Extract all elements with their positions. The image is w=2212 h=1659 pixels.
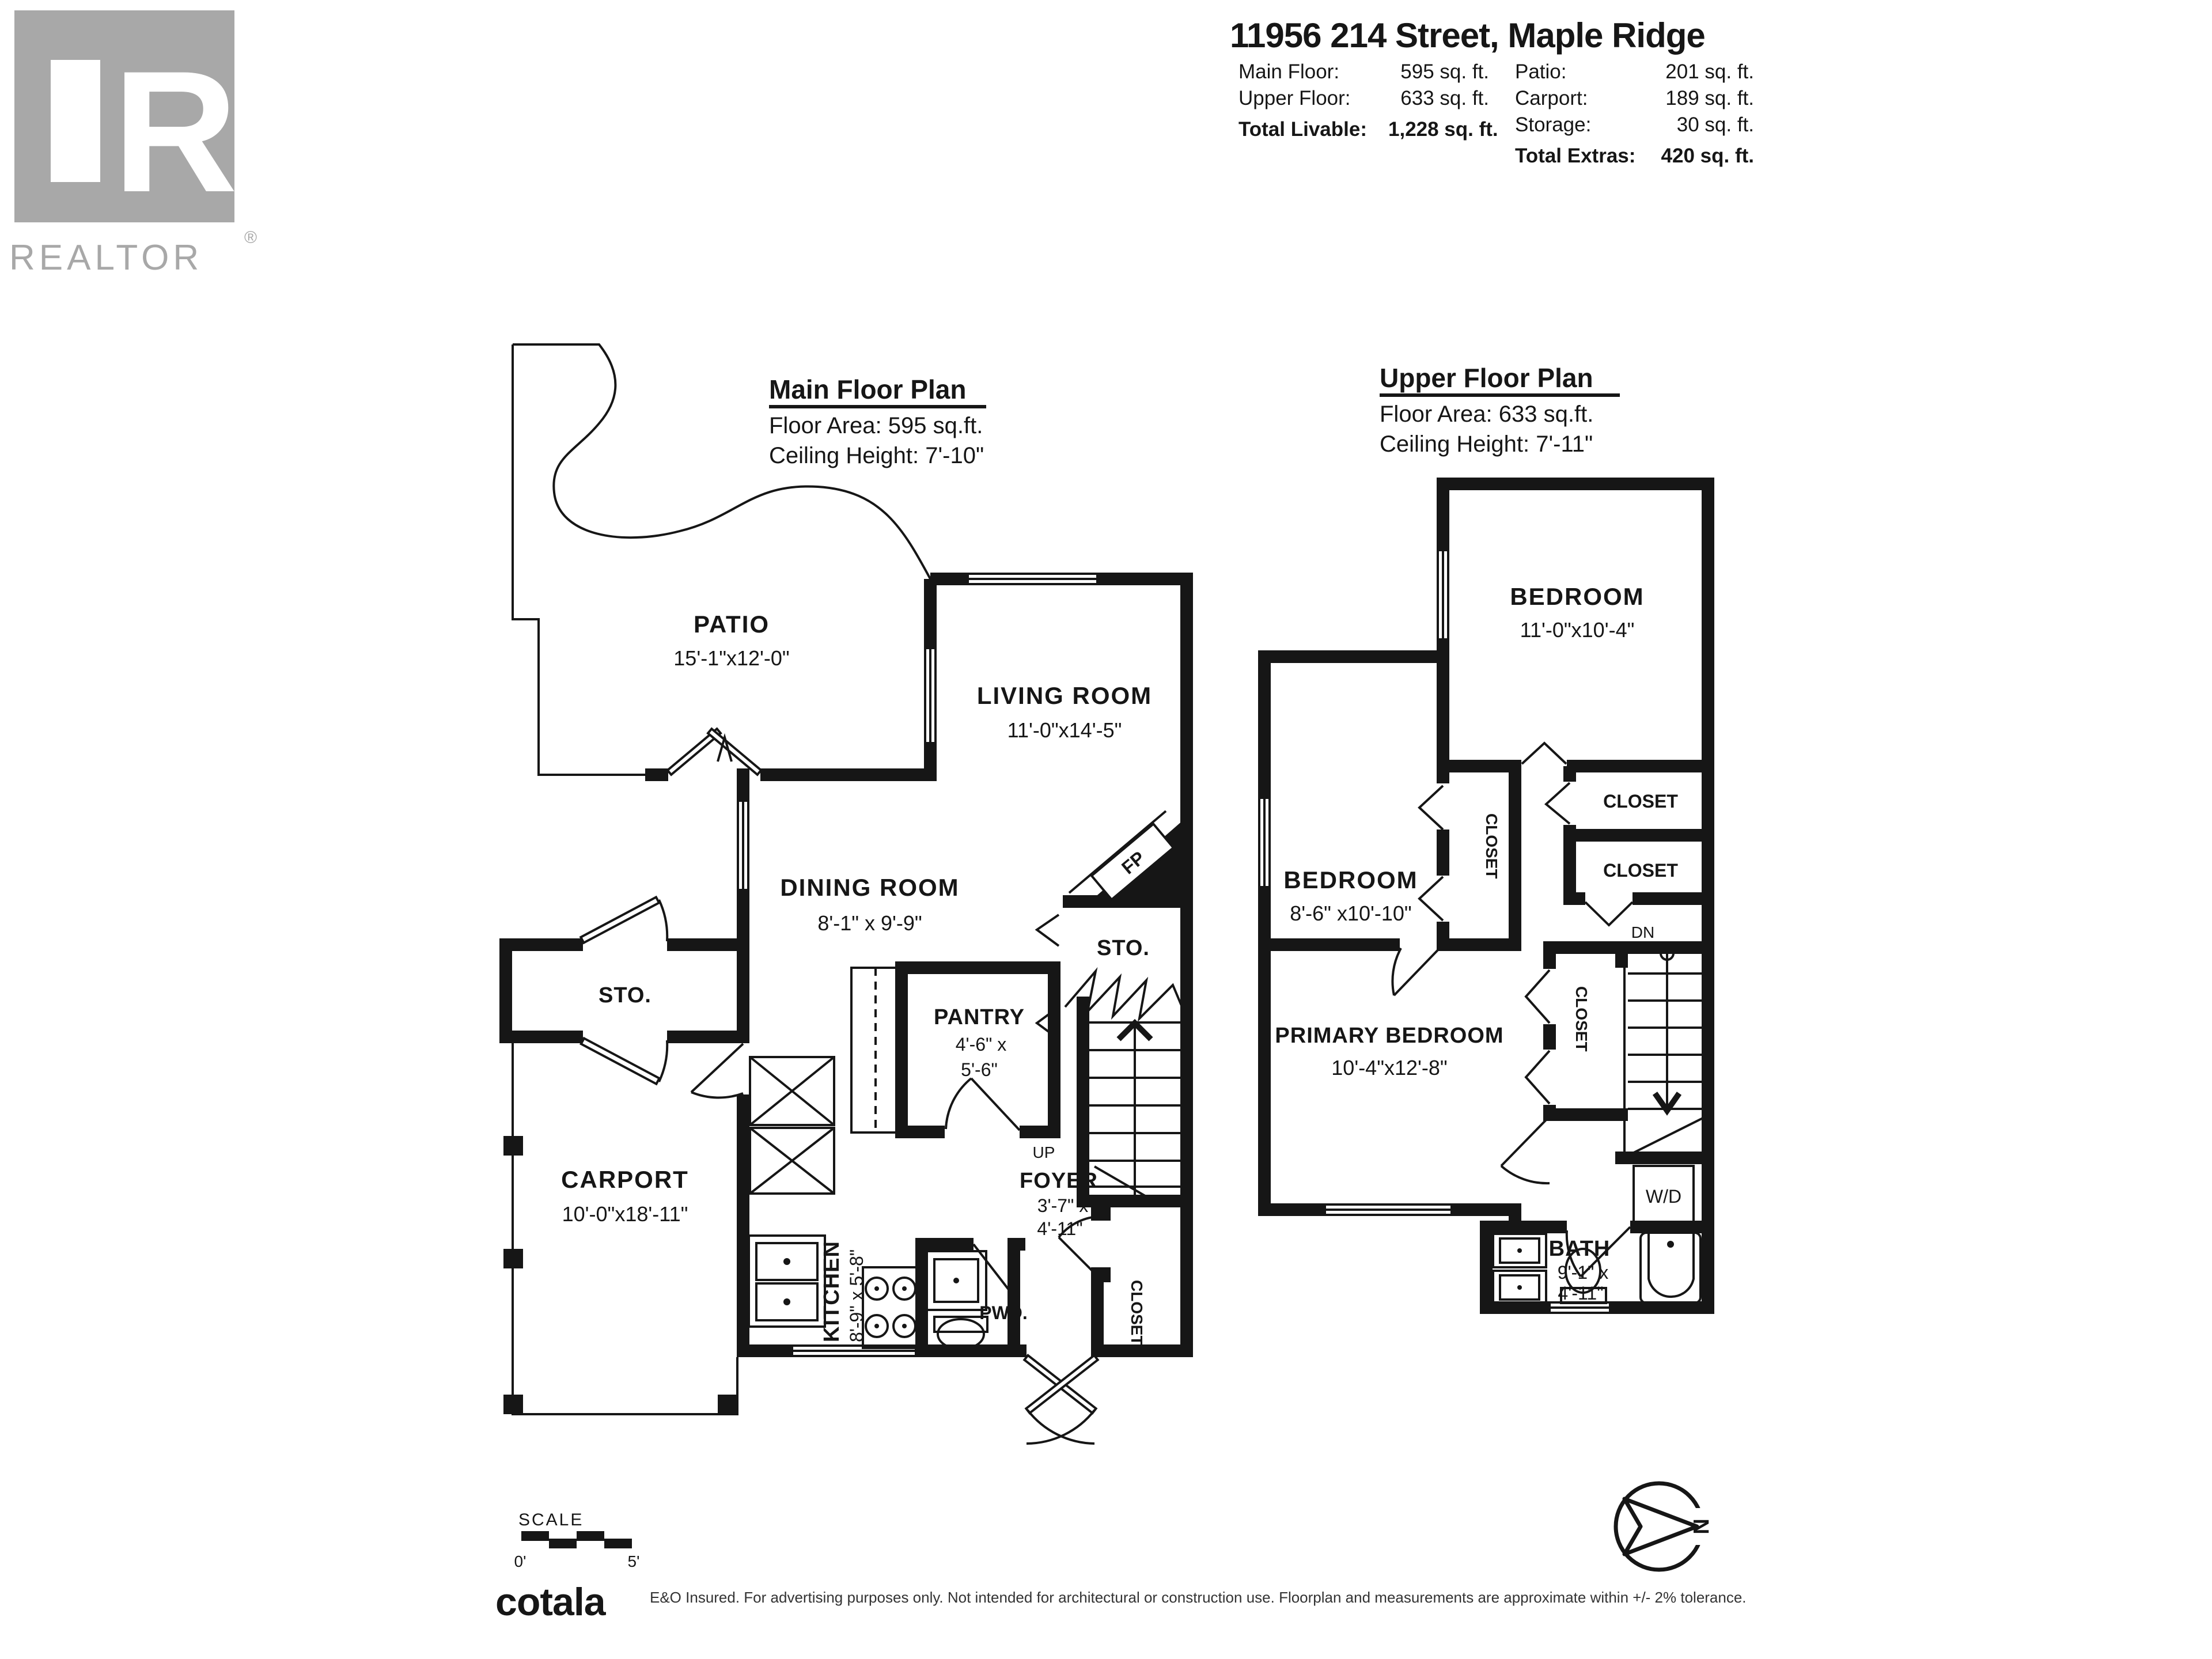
- total-extras-value: 420 sq. ft.: [1661, 145, 1754, 167]
- room-label-foyer: FOYER: [1020, 1169, 1098, 1193]
- stat-label: Carport:: [1515, 87, 1588, 109]
- room-dims-kitchen: 8'-9" x 5'-8": [846, 1249, 867, 1342]
- main-floor-plan: Main Floor Plan Floor Area: 595 sq.ft. C…: [499, 344, 1193, 1444]
- room-label-closet-mid: CLOSET: [1483, 813, 1501, 879]
- stat-label: Upper Floor:: [1238, 87, 1351, 109]
- post: [503, 1249, 523, 1268]
- window: [1325, 1205, 1452, 1215]
- door-leaf: [1501, 1116, 1550, 1166]
- floorplan-sheet: R REALTOR ® 11956 214 Street, Maple Ridg…: [0, 0, 2212, 1659]
- stat-value: 30 sq. ft.: [1677, 113, 1754, 136]
- range-stove-icon: [863, 1267, 917, 1348]
- room-dims-primary: 10'-4"x12'-8": [1331, 1056, 1447, 1080]
- scale-bar-icon: [521, 1531, 632, 1548]
- stat-value: 633 sq. ft.: [1400, 87, 1489, 109]
- window: [1259, 798, 1270, 887]
- room-label-closet-primary: CLOSET: [1573, 986, 1590, 1052]
- footer: SCALE 0' 5' cotala E&O Insured. For adve…: [495, 1483, 1747, 1624]
- room-label-living: LIVING ROOM: [977, 682, 1152, 709]
- dn-label: DN: [1631, 923, 1654, 941]
- scale-five: 5': [628, 1552, 640, 1570]
- room-label-storage-left: STO.: [599, 983, 652, 1007]
- north-arrow-icon: N: [1616, 1483, 1724, 1570]
- room-label-storage-right: STO.: [1097, 936, 1150, 960]
- stat-value: 189 sq. ft.: [1665, 87, 1754, 109]
- cotala-logo: cotala: [495, 1580, 607, 1624]
- door-jamb: [1091, 1267, 1111, 1282]
- total-extras-label: Total Extras:: [1515, 145, 1635, 167]
- door-swing: [946, 1078, 971, 1129]
- room-dims-pantry-1: 4'-6" x: [956, 1034, 1007, 1055]
- scale-zero: 0': [514, 1552, 527, 1570]
- room-label-kitchen: KITCHEN: [820, 1241, 844, 1342]
- room-label-patio: PATIO: [694, 611, 770, 638]
- room-label-pwd: PWD.: [979, 1302, 1028, 1323]
- french-door: [668, 729, 761, 775]
- front-door: [1024, 1355, 1097, 1444]
- cabinet: [851, 968, 901, 1132]
- page-title: 11956 214 Street, Maple Ridge: [1230, 16, 1705, 55]
- stat-label: Main Floor:: [1238, 60, 1339, 83]
- room-dims-bedroom1: 11'-0"x10'-4": [1520, 618, 1635, 642]
- door-leaf: [971, 1078, 1020, 1130]
- stat-label: Patio:: [1515, 60, 1567, 83]
- room-dims-foyer-1: 3'-7" x: [1037, 1195, 1089, 1216]
- upper-floor-area: Floor Area: 633 sq.ft.: [1380, 402, 1593, 427]
- up-label: UP: [1033, 1143, 1055, 1161]
- post: [718, 1395, 737, 1414]
- total-livable-label: Total Livable:: [1238, 118, 1367, 141]
- realtor-registered-mark: ®: [244, 228, 257, 247]
- upper-floor-plan: Upper Floor Plan Floor Area: 633 sq.ft. …: [1258, 363, 1714, 1314]
- room-label-dining: DINING ROOM: [780, 874, 959, 901]
- window: [925, 648, 935, 743]
- room-label-bedroom2: BEDROOM: [1283, 866, 1418, 893]
- fireplace-icon: FP: [1069, 811, 1184, 900]
- room-dims-bedroom2: 8'-6" x10'-10": [1290, 902, 1411, 925]
- realtor-logo-r: R: [113, 35, 238, 228]
- room-dims-foyer-2: 4'-11": [1037, 1218, 1082, 1239]
- door-leaf: [691, 1044, 743, 1092]
- main-floor-area: Floor Area: 595 sq.ft.: [769, 413, 983, 438]
- header: 11956 214 Street, Maple Ridge Main Floor…: [1230, 16, 1754, 167]
- scale-label: SCALE: [518, 1510, 584, 1529]
- door-leaf: [1394, 945, 1443, 995]
- main-floor-title: Main Floor Plan: [769, 374, 966, 404]
- stairs-down: [1624, 945, 1708, 1157]
- closet-doors: [1419, 743, 1633, 1104]
- carport-outline: [503, 1043, 737, 1414]
- stat-label: Storage:: [1515, 113, 1591, 136]
- room-dims-pantry-2: 5'-6": [961, 1059, 998, 1080]
- room-dims-patio: 15'-1"x12'-0": [673, 646, 789, 670]
- door-swing: [1501, 1166, 1550, 1183]
- washer-dryer-icon: W/D: [1634, 1166, 1694, 1224]
- stat-value: 595 sq. ft.: [1400, 60, 1489, 83]
- upper-floor-title: Upper Floor Plan: [1380, 363, 1593, 393]
- post: [503, 1136, 523, 1156]
- main-floor-ceiling: Ceiling Height: 7'-10": [769, 443, 984, 468]
- room-dims-living: 11'-0"x14'-5": [1007, 718, 1122, 742]
- powder-room-fixtures: [926, 1244, 1009, 1349]
- room-label-primary: PRIMARY BEDROOM: [1275, 1024, 1503, 1048]
- room-label-closet-r1: CLOSET: [1603, 791, 1678, 812]
- room-label-carport: CARPORT: [561, 1166, 689, 1193]
- door-jamb: [1091, 1206, 1111, 1221]
- wd-label: W/D: [1646, 1186, 1681, 1207]
- room-dims-bath-1: 9'-1" x: [1558, 1262, 1609, 1283]
- room-label-pantry: PANTRY: [934, 1005, 1025, 1029]
- door-leaf: [1059, 1237, 1097, 1276]
- window: [1438, 550, 1448, 639]
- realtor-logo-icon: R REALTOR ®: [9, 10, 257, 278]
- post: [503, 1395, 523, 1414]
- stat-value: 201 sq. ft.: [1665, 60, 1754, 83]
- room-dims-dining: 8'-1" x 9'-9": [817, 911, 922, 935]
- room-label-bedroom1: BEDROOM: [1510, 583, 1644, 610]
- room-label-closet-r2: CLOSET: [1603, 860, 1678, 881]
- disclaimer-text: E&O Insured. For advertising purposes on…: [650, 1589, 1747, 1606]
- window: [738, 801, 748, 890]
- upper-floor-ceiling: Ceiling Height: 7'-11": [1380, 431, 1593, 457]
- room-dims-carport: 10'-0"x18'-11": [562, 1202, 688, 1226]
- patio-outline: [513, 344, 930, 775]
- realtor-logo-stem: [51, 60, 100, 182]
- realtor-logo-word: REALTOR: [9, 238, 203, 278]
- window: [968, 574, 1097, 584]
- room-label-bath: BATH: [1549, 1237, 1611, 1261]
- total-livable-value: 1,228 sq. ft.: [1388, 118, 1498, 141]
- north-label: N: [1688, 1518, 1713, 1534]
- room-dims-bath-2: 4'-11": [1558, 1283, 1603, 1304]
- room-label-closet: CLOSET: [1128, 1280, 1146, 1346]
- door-swing: [691, 1092, 743, 1097]
